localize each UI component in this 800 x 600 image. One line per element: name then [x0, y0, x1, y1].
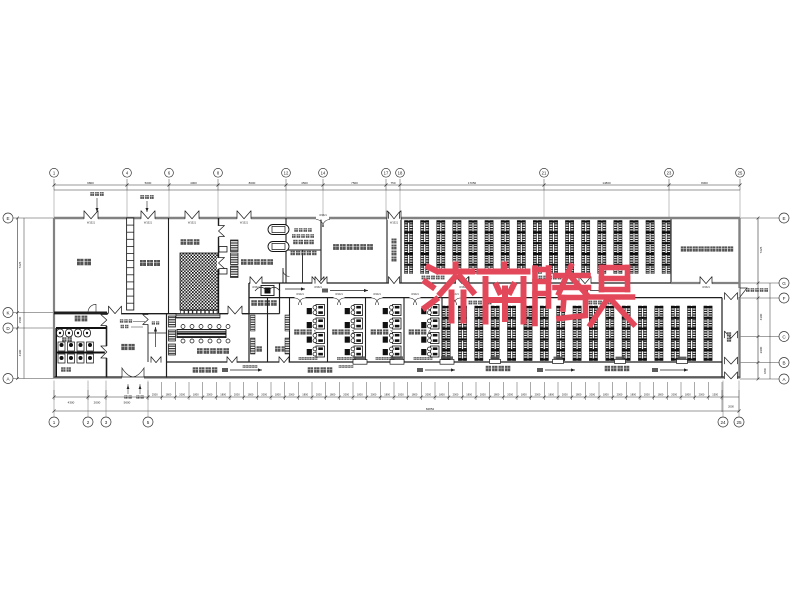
svg-text:W1521: W1521: [319, 214, 327, 217]
svg-text:2000: 2000: [699, 392, 705, 396]
svg-text:W1521: W1521: [188, 221, 197, 225]
svg-text:5: 5: [147, 420, 150, 425]
svg-text:2000: 2000: [671, 392, 677, 396]
svg-text:1800: 1800: [521, 392, 527, 396]
svg-text:1800: 1800: [220, 392, 226, 396]
svg-text:2000: 2000: [728, 405, 734, 409]
svg-text:1800: 1800: [658, 392, 664, 396]
svg-text:2000: 2000: [94, 401, 101, 405]
svg-text:2000: 2000: [589, 392, 595, 396]
svg-text:W1521: W1521: [144, 221, 153, 225]
svg-text:84852: 84852: [426, 407, 435, 411]
svg-text:4300: 4300: [68, 401, 75, 405]
svg-text:1800: 1800: [548, 392, 554, 396]
svg-text:W1021: W1021: [335, 293, 343, 296]
svg-text:W1521: W1521: [390, 221, 399, 225]
svg-text:4300: 4300: [18, 349, 22, 356]
svg-text:W1521: W1521: [702, 286, 710, 289]
svg-text:8000: 8000: [249, 181, 256, 185]
svg-text:2900: 2900: [759, 346, 763, 353]
svg-text:1800: 1800: [685, 392, 691, 396]
svg-text:2500: 2500: [152, 392, 158, 396]
svg-text:2000: 2000: [480, 392, 486, 396]
svg-text:F: F: [783, 296, 786, 301]
svg-text:1800: 1800: [763, 368, 767, 374]
svg-text:2000: 2000: [343, 392, 349, 396]
svg-text:W1021: W1021: [373, 293, 381, 296]
svg-text:2000: 2000: [289, 392, 295, 396]
svg-text:1800: 1800: [439, 392, 445, 396]
svg-text:7225: 7225: [18, 261, 22, 268]
svg-text:1800: 1800: [630, 392, 636, 396]
svg-text:3: 3: [105, 420, 108, 425]
svg-text:1800: 1800: [603, 392, 609, 396]
svg-text:2000: 2000: [234, 392, 240, 396]
svg-text:12: 12: [284, 171, 289, 176]
svg-text:2000: 2000: [535, 392, 541, 396]
svg-text:25: 25: [736, 420, 742, 425]
svg-text:W1021: W1021: [411, 293, 419, 296]
svg-text:W1521: W1521: [240, 221, 249, 225]
svg-text:5000: 5000: [145, 181, 152, 185]
svg-text:24: 24: [720, 420, 726, 425]
svg-text:2000: 2000: [617, 392, 623, 396]
svg-text:2000: 2000: [371, 392, 377, 396]
svg-text:1800: 1800: [302, 392, 308, 396]
svg-text:750: 750: [390, 181, 395, 185]
svg-text:2000: 2000: [453, 392, 459, 396]
svg-text:14800: 14800: [602, 181, 611, 185]
svg-text:23: 23: [667, 171, 672, 176]
svg-text:1800: 1800: [330, 392, 336, 396]
svg-text:1800: 1800: [384, 392, 390, 396]
svg-text:1: 1: [53, 420, 56, 425]
svg-text:17050: 17050: [468, 181, 477, 185]
svg-text:5600: 5600: [124, 401, 131, 405]
svg-text:2000: 2000: [562, 392, 568, 396]
svg-text:7225: 7225: [759, 246, 763, 253]
svg-text:1500: 1500: [712, 392, 718, 396]
svg-text:2000: 2000: [261, 392, 267, 396]
svg-text:21: 21: [542, 171, 547, 176]
svg-text:1800: 1800: [466, 392, 472, 396]
svg-text:1800: 1800: [576, 392, 582, 396]
svg-text:17: 17: [384, 171, 389, 176]
svg-text:2000: 2000: [644, 392, 650, 396]
svg-text:E: E: [6, 216, 9, 221]
svg-text:1800: 1800: [357, 392, 363, 396]
svg-text:8300: 8300: [701, 181, 708, 185]
svg-text:4500: 4500: [301, 181, 308, 185]
svg-text:2000: 2000: [207, 392, 213, 396]
svg-text:2000: 2000: [425, 392, 431, 396]
svg-text:W1521: W1521: [314, 286, 322, 289]
svg-text:B: B: [782, 361, 785, 366]
svg-text:4300: 4300: [759, 313, 763, 320]
svg-text:9800: 9800: [87, 181, 94, 185]
svg-text:14: 14: [321, 171, 326, 176]
svg-text:1800: 1800: [166, 392, 172, 396]
svg-text:E: E: [782, 216, 785, 221]
svg-text:1800: 1800: [193, 392, 199, 396]
svg-text:1800: 1800: [494, 392, 500, 396]
svg-text:1800: 1800: [248, 392, 254, 396]
svg-text:W1021: W1021: [296, 293, 304, 296]
svg-text:G: G: [782, 281, 786, 286]
svg-text:1500: 1500: [18, 316, 22, 323]
svg-text:4000: 4000: [190, 181, 197, 185]
svg-text:1800: 1800: [275, 392, 281, 396]
svg-text:2000: 2000: [398, 392, 404, 396]
svg-text:2000: 2000: [179, 392, 185, 396]
svg-text:1800: 1800: [412, 392, 418, 396]
svg-text:18: 18: [398, 171, 403, 176]
svg-text:2000: 2000: [507, 392, 513, 396]
svg-text:25: 25: [738, 171, 743, 176]
svg-text:W1521: W1521: [87, 221, 96, 225]
svg-text:2: 2: [87, 420, 90, 425]
svg-text:2000: 2000: [316, 392, 322, 396]
svg-text:W1521: W1521: [252, 286, 260, 289]
svg-text:7500: 7500: [351, 181, 358, 185]
